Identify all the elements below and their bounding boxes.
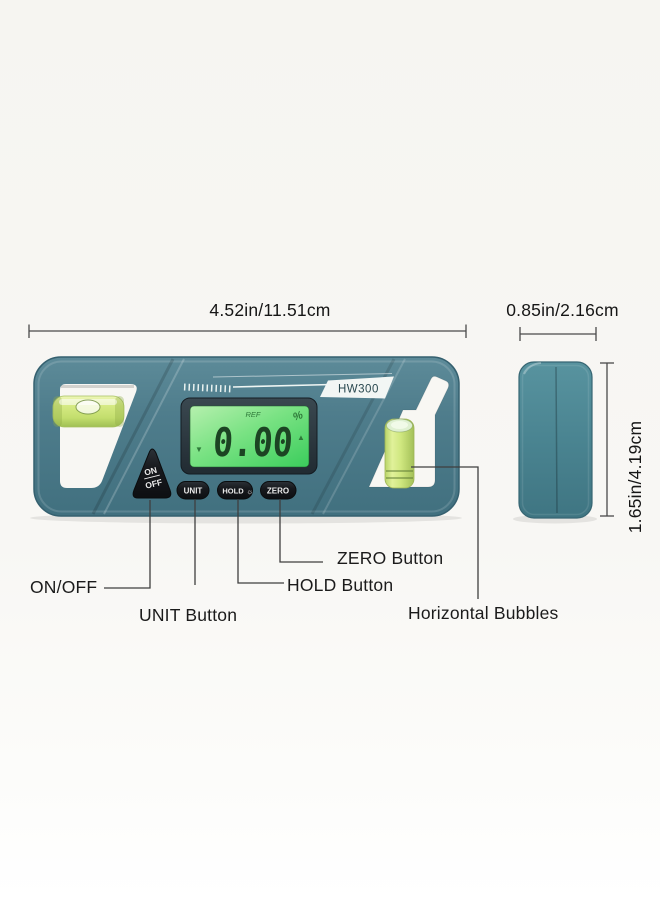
hold-callout-label: HOLD Button — [287, 576, 393, 595]
zero-button-label: ZERO — [267, 487, 289, 496]
unit-callout-label: UNIT Button — [139, 606, 237, 625]
side-width-dimension-label: 0.85in/2.16cm — [490, 301, 635, 320]
width-dimension-line — [29, 325, 466, 339]
bubbles-callout-label: Horizontal Bubbles — [408, 604, 559, 623]
ref-indicator: REF — [246, 410, 261, 419]
lcd-reading: 0.00 — [212, 419, 295, 466]
vertical-bubble-vial — [385, 419, 414, 488]
hold-button: HOLD ☼ — [218, 482, 254, 500]
level-front-view: HW300 REF % 0.00 ▼ ▲ ON OFF — [34, 357, 459, 516]
zero-button: ZERO — [261, 482, 297, 500]
power-callout-label: ON/OFF — [30, 578, 97, 597]
side-width-dimension-line — [520, 327, 596, 341]
level-side-view — [519, 362, 592, 518]
up-arrow-icon: ▲ — [297, 433, 305, 442]
model-label: HW300 — [338, 384, 379, 396]
width-dimension-label: 4.52in/11.51cm — [160, 301, 380, 320]
hold-button-label: HOLD — [222, 487, 244, 496]
digital-level-illustration: HW300 REF % 0.00 ▼ ▲ ON OFF — [0, 0, 660, 900]
unit-button: UNIT — [177, 482, 209, 500]
side-seam-line — [556, 367, 557, 513]
level-bubble — [76, 400, 100, 414]
height-dimension-line — [600, 363, 614, 516]
horizontal-bubble-vial — [53, 396, 124, 427]
lcd-display: REF % 0.00 ▼ ▲ — [181, 398, 317, 474]
backlight-icon: ☼ — [247, 487, 254, 496]
down-arrow-icon: ▼ — [195, 445, 203, 454]
height-dimension-label: 1.65in/4.19cm — [626, 397, 646, 557]
level-bubble — [391, 421, 408, 429]
product-annotation-image: HW300 REF % 0.00 ▼ ▲ ON OFF — [0, 0, 660, 900]
unit-button-label: UNIT — [184, 487, 203, 496]
zero-callout-label: ZERO Button — [337, 549, 443, 568]
